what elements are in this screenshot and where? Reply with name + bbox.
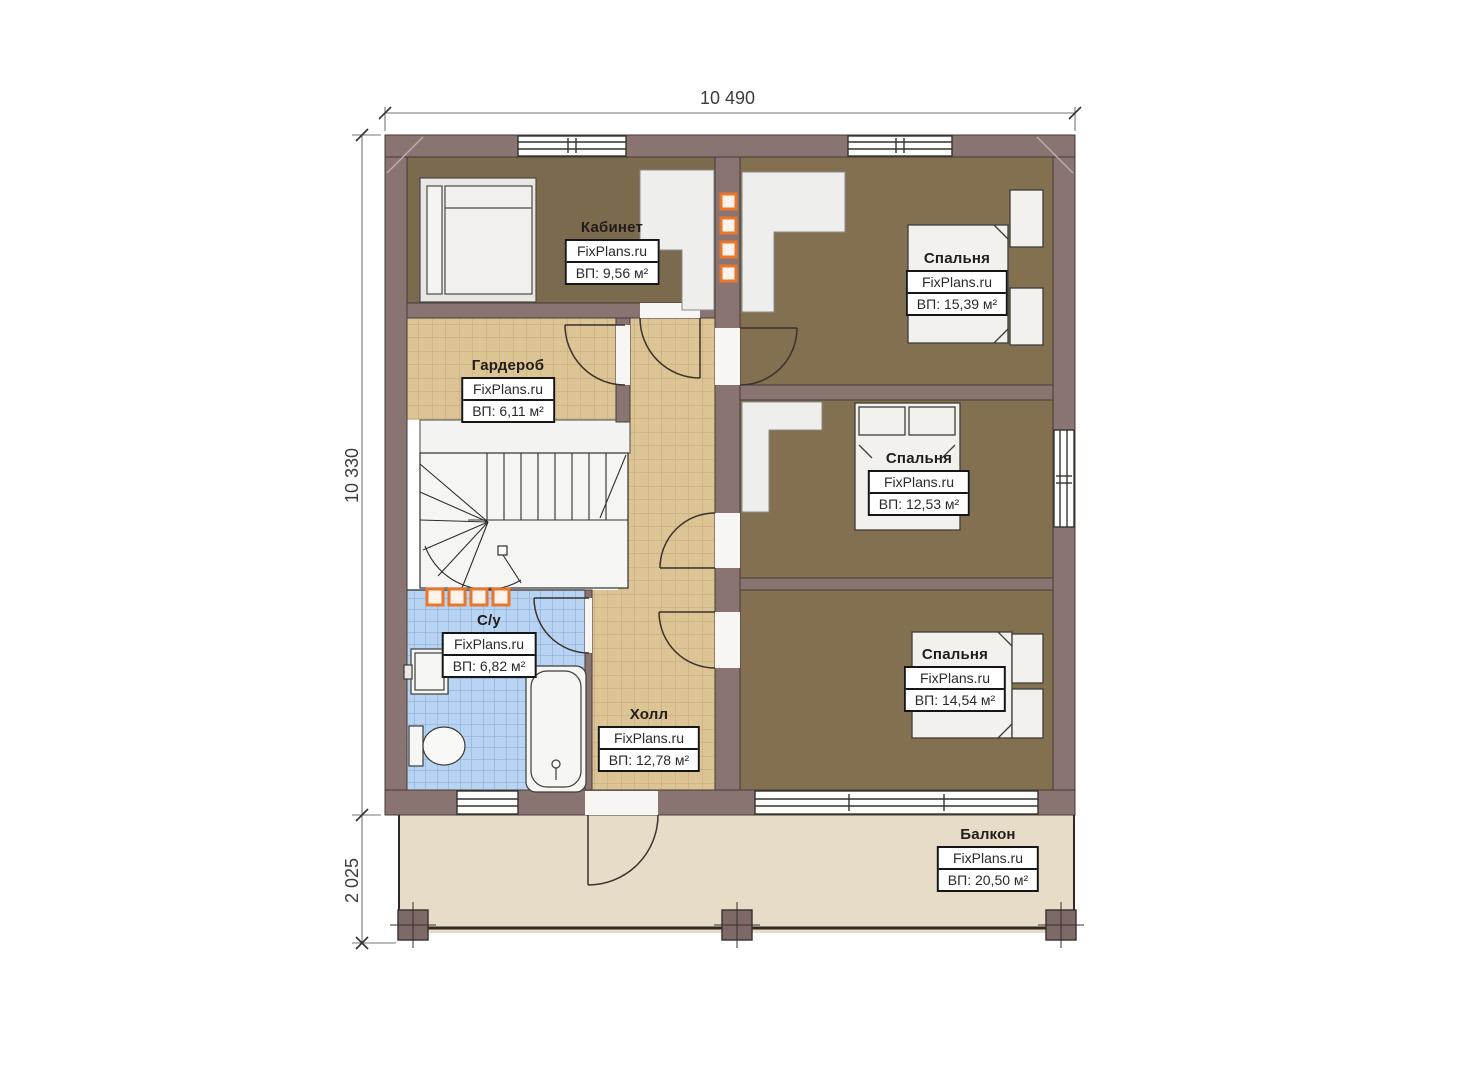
room-name: С/у — [442, 612, 537, 629]
brand-watermark: FixPlans.ru — [939, 848, 1037, 870]
room-name: Спальня — [906, 250, 1008, 267]
bathtub — [526, 666, 586, 792]
room-area: ВП: 12,53 м² — [870, 494, 968, 514]
room-label-hall: Холл FixPlans.ru ВП: 12,78 м² — [598, 706, 700, 772]
room-area: ВП: 9,56 м² — [567, 263, 658, 283]
window-bathroom — [457, 791, 518, 814]
dimension-left-height: 10 330 — [342, 448, 363, 503]
bed-office — [420, 178, 536, 302]
room-label-bedroom-bottom: Спальня FixPlans.ru ВП: 14,54 м² — [904, 646, 1006, 712]
room-label-wardrobe: Гардероб FixPlans.ru ВП: 6,11 м² — [461, 357, 555, 423]
brand-watermark: FixPlans.ru — [600, 728, 698, 750]
room-label-bedroom-middle: Спальня FixPlans.ru ВП: 12,53 м² — [868, 450, 970, 516]
room-label-balcony: Балкон FixPlans.ru ВП: 20,50 м² — [937, 826, 1039, 892]
window-bedroom-middle — [1054, 430, 1074, 527]
brand-watermark: FixPlans.ru — [870, 472, 968, 494]
dimension-balcony-height: 2 025 — [342, 858, 363, 903]
brand-watermark: FixPlans.ru — [567, 241, 658, 263]
room-area: ВП: 20,50 м² — [939, 870, 1037, 890]
brand-watermark: FixPlans.ru — [444, 634, 535, 656]
room-name: Спальня — [868, 450, 970, 467]
room-area: ВП: 15,39 м² — [908, 294, 1006, 314]
room-name: Балкон — [937, 826, 1039, 843]
room-area: ВП: 12,78 м² — [600, 750, 698, 770]
room-area: ВП: 14,54 м² — [906, 690, 1004, 710]
room-area: ВП: 6,82 м² — [444, 656, 535, 676]
room-label-office: Кабинет FixPlans.ru ВП: 9,56 м² — [565, 219, 660, 285]
floor-plan-drawing — [0, 0, 1473, 1080]
dimension-top-width: 10 490 — [700, 88, 755, 109]
brand-watermark: FixPlans.ru — [908, 272, 1006, 294]
floor-plan-page: 10 490 10 330 2 025 Кабинет FixPlans.ru … — [0, 0, 1473, 1080]
room-area: ВП: 6,11 м² — [463, 401, 553, 421]
window-bedroom-bottom — [755, 791, 1038, 814]
room-name: Холл — [598, 706, 700, 723]
room-name: Спальня — [904, 646, 1006, 663]
toilet — [409, 726, 465, 766]
room-name: Гардероб — [461, 357, 555, 374]
room-name: Кабинет — [565, 219, 660, 236]
window-office — [518, 136, 626, 156]
staircase — [420, 420, 630, 589]
room-label-bathroom: С/у FixPlans.ru ВП: 6,82 м² — [442, 612, 537, 678]
brand-watermark: FixPlans.ru — [463, 379, 553, 401]
brand-watermark: FixPlans.ru — [906, 668, 1004, 690]
room-label-bedroom-top: Спальня FixPlans.ru ВП: 15,39 м² — [906, 250, 1008, 316]
window-bedroom-top — [848, 136, 952, 156]
